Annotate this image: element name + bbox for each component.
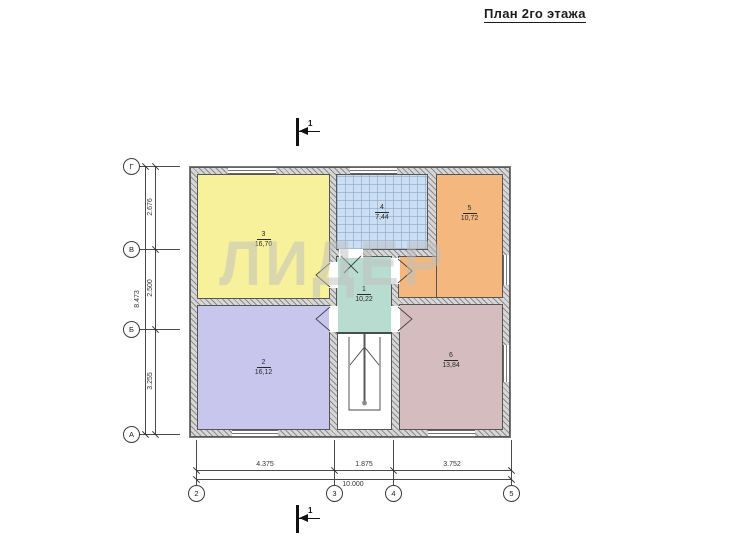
dim-bottom-seg2: 1.875 <box>334 461 394 469</box>
axis-bubble-v: В <box>123 241 140 258</box>
floor-plan: 3 16,70 4 7,44 5 10,72 1 <box>190 167 510 437</box>
window-top-room3 <box>228 167 276 174</box>
room-1-label: 1 10,22 <box>355 286 373 303</box>
axis-label: 5 <box>509 489 513 498</box>
door-opening-hall-room2 <box>329 306 338 332</box>
room-number: 1 <box>362 286 366 293</box>
window-top-room4 <box>350 167 397 174</box>
axis-label: В <box>129 245 134 254</box>
axis-label: Г <box>129 162 133 171</box>
dim-line-bottom-segments <box>196 470 512 471</box>
room-1-hall: 1 10,22 <box>336 256 392 333</box>
room-2-label: 2 16,12 <box>255 359 273 376</box>
dim-line-left-segments <box>155 166 156 434</box>
room-6: 6 13,84 <box>399 304 503 430</box>
room-4: 4 7,44 <box>336 174 428 250</box>
axis-label: А <box>129 430 134 439</box>
room-number: 2 <box>262 359 266 366</box>
room-area: 10,22 <box>355 296 373 303</box>
room-4-label: 4 7,44 <box>375 204 389 221</box>
section-label-top: 1 <box>308 119 312 128</box>
window-bottom-room6 <box>428 430 475 437</box>
axis-bubble-4: 4 <box>385 485 402 502</box>
door-opening-hall-room3 <box>329 262 338 288</box>
door-opening-hall-room6 <box>391 306 400 332</box>
axis-label: 4 <box>391 489 395 498</box>
room-6-label: 6 13,84 <box>442 352 460 369</box>
room-area: 7,44 <box>375 214 389 221</box>
axis-label: Б <box>129 325 134 334</box>
axis-bubble-g: Г <box>123 158 140 175</box>
room-area: 10,72 <box>461 215 479 222</box>
label-divider <box>257 367 271 368</box>
stairwell <box>337 333 392 430</box>
axis-line-v <box>139 249 180 250</box>
room-5-label: 5 10,72 <box>461 205 479 222</box>
dim-line-left-total <box>145 166 146 434</box>
section-label-bottom: 1 <box>308 506 312 515</box>
axis-bubble-2: 2 <box>188 485 205 502</box>
window-bottom-room2 <box>232 430 278 437</box>
axis-label: 2 <box>194 489 198 498</box>
dim-left-seg2: 2.500 <box>147 258 155 318</box>
page-title: План 2го этажа <box>484 6 586 23</box>
axis-line-b <box>139 329 180 330</box>
window-right-room6 <box>503 345 510 382</box>
room-2: 2 16,12 <box>197 305 330 430</box>
door-opening-hall-room4 <box>339 249 363 258</box>
room-number: 6 <box>449 352 453 359</box>
axis-bubble-a: А <box>123 426 140 443</box>
section-arrow-icon <box>299 127 308 135</box>
dim-bottom-seg3: 3.752 <box>422 461 482 469</box>
room-area: 13,84 <box>442 362 460 369</box>
window-right-room5 <box>503 255 510 285</box>
dim-line-bottom-total <box>196 479 512 480</box>
door-opening-hall-room5 <box>391 258 400 284</box>
label-divider <box>257 239 271 240</box>
axis-bubble-5: 5 <box>503 485 520 502</box>
label-divider <box>375 212 389 213</box>
room-3-label: 3 16,70 <box>255 231 273 248</box>
drawing-sheet: План 2го этажа 1 3 16,70 4 7,44 5 <box>0 0 731 548</box>
label-divider <box>463 213 477 214</box>
room-number: 3 <box>262 231 266 238</box>
dim-bottom-seg1: 4.375 <box>235 461 295 469</box>
room-5-extension <box>398 256 437 298</box>
label-divider <box>444 360 458 361</box>
room-number: 5 <box>468 205 472 212</box>
dim-left-seg1: 2.676 <box>147 177 155 237</box>
room-number: 4 <box>380 204 384 211</box>
room-3: 3 16,70 <box>197 174 330 299</box>
room-5: 5 10,72 <box>436 174 503 298</box>
axis-label: 3 <box>332 489 336 498</box>
section-arrow-icon <box>299 514 308 522</box>
dim-left-seg3: 3.255 <box>147 351 155 411</box>
axis-bubble-b: Б <box>123 321 140 338</box>
axis-bubble-3: 3 <box>326 485 343 502</box>
dim-left-total: 8.473 <box>134 269 142 329</box>
room-area: 16,70 <box>255 241 273 248</box>
room-area: 16,12 <box>255 369 273 376</box>
label-divider <box>357 294 371 295</box>
